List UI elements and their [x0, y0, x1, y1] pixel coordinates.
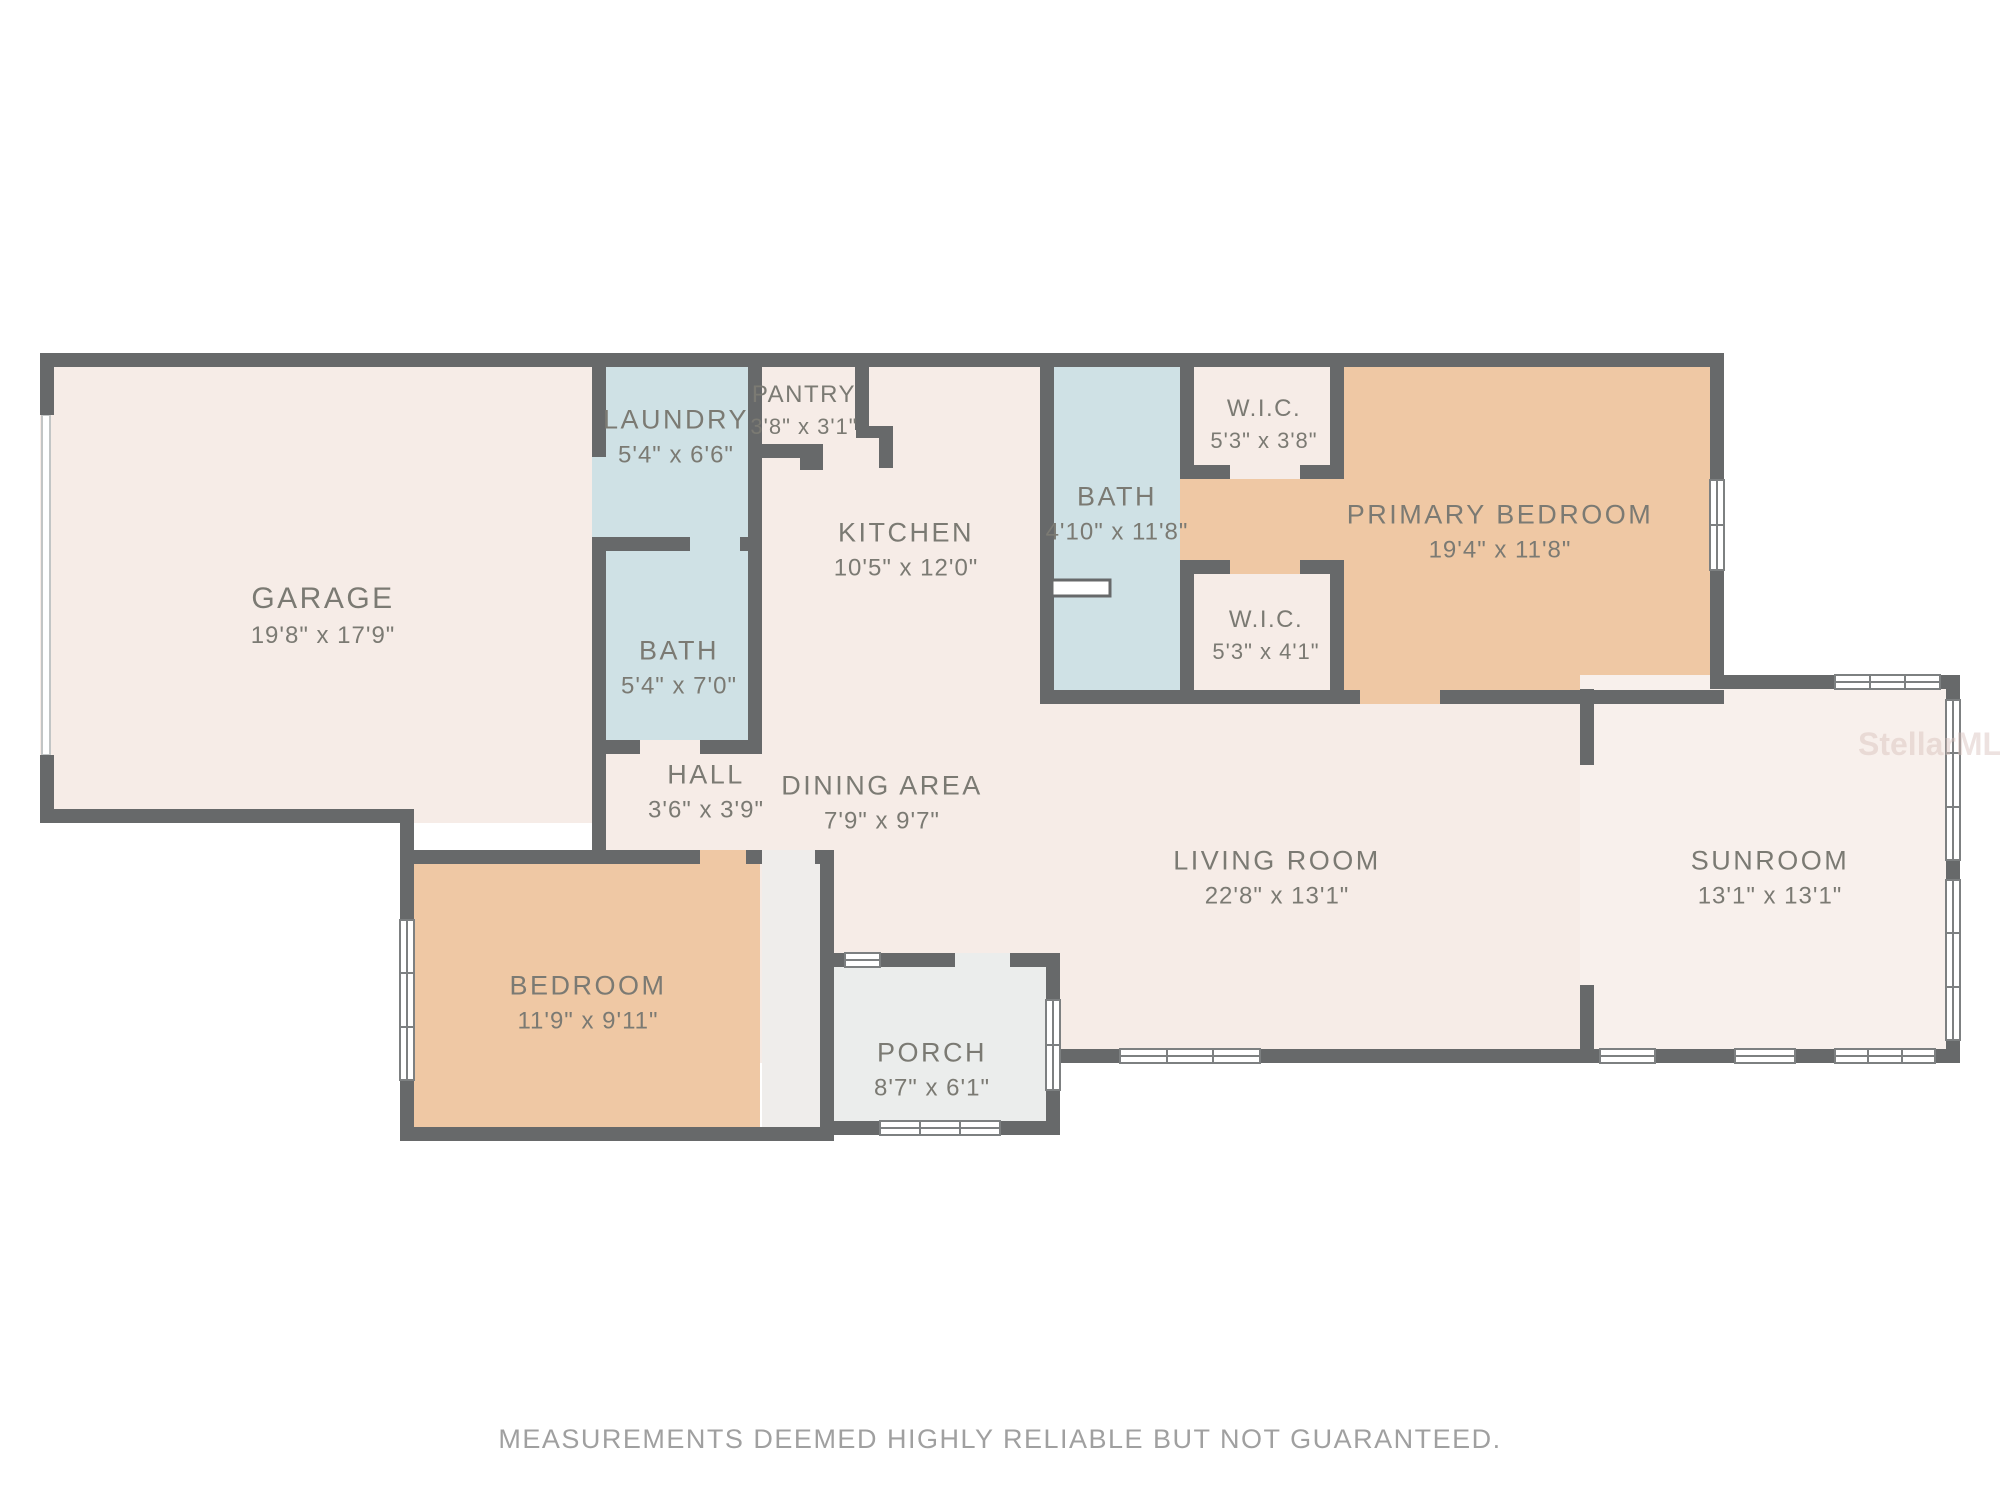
room-label-primary-bedroom: PRIMARY BEDROOM 19'4" x 11'8"	[1347, 499, 1654, 566]
room-name: GARAGE	[251, 580, 396, 618]
room-dims: 11'9" x 9'11"	[509, 1006, 666, 1036]
room-dims: 22'8" x 13'1"	[1173, 881, 1381, 911]
room-label-bedroom: BEDROOM 11'9" x 9'11"	[509, 970, 666, 1037]
room-dims: 13'1" x 13'1"	[1691, 881, 1850, 911]
room-label-porch: PORCH 8'7" x 6'1"	[874, 1037, 990, 1104]
window-marker	[1735, 1049, 1795, 1063]
room-name: BATH	[1046, 481, 1189, 515]
room-name: KITCHEN	[834, 517, 979, 551]
window-marker	[1046, 1000, 1060, 1090]
garage-door-marker	[42, 415, 50, 755]
room-corridor	[1180, 479, 1344, 574]
room-name: W.I.C.	[1212, 605, 1319, 635]
window-marker	[1710, 480, 1724, 570]
room-label-dining: DINING AREA 7'9" x 9'7"	[781, 770, 983, 837]
room-name: LAUNDRY	[603, 404, 749, 438]
watermark: StellarMLS	[1858, 726, 2000, 763]
room-dims: 8'7" x 6'1"	[874, 1073, 990, 1103]
room-dims: 4'10" x 11'8"	[1046, 517, 1189, 547]
rooms-layer	[40, 353, 1960, 1141]
room-name: DINING AREA	[781, 770, 983, 804]
room-name: PORCH	[874, 1037, 990, 1071]
room-label-wic-top: W.I.C. 5'3" x 3'8"	[1210, 394, 1317, 455]
room-label-bath-hall: BATH 5'4" x 7'0"	[621, 635, 737, 702]
room-label-laundry: LAUNDRY 5'4" x 6'6"	[603, 404, 749, 471]
room-label-kitchen: KITCHEN 10'5" x 12'0"	[834, 517, 979, 584]
room-dims: 19'8" x 17'9"	[251, 620, 396, 650]
room-dims: 10'5" x 12'0"	[834, 553, 979, 583]
bath-vanity-marker	[1052, 580, 1110, 596]
window-marker	[880, 1121, 1000, 1135]
room-name: PRIMARY BEDROOM	[1347, 499, 1654, 533]
room-dims: 5'3" x 4'1"	[1212, 638, 1319, 666]
room-name: PANTRY	[750, 380, 857, 410]
room-name: W.I.C.	[1210, 394, 1317, 424]
room-name: BEDROOM	[509, 970, 666, 1004]
window-marker	[400, 920, 414, 1080]
room-label-wic-bottom: W.I.C. 5'3" x 4'1"	[1212, 605, 1319, 666]
room-label-pantry: PANTRY 3'8" x 3'1"	[750, 380, 857, 441]
window-marker	[845, 953, 880, 967]
room-label-garage: GARAGE 19'8" x 17'9"	[251, 580, 396, 651]
room-name: LIVING ROOM	[1173, 845, 1381, 879]
window-marker	[1600, 1049, 1655, 1063]
room-dims: 19'4" x 11'8"	[1347, 535, 1654, 565]
room-name: SUNROOM	[1691, 845, 1850, 879]
room-label-hall: HALL 3'6" x 3'9"	[648, 759, 764, 826]
room-dims: 7'9" x 9'7"	[781, 806, 983, 836]
disclaimer-text: MEASUREMENTS DEEMED HIGHLY RELIABLE BUT …	[498, 1424, 1501, 1455]
room-dims: 3'8" x 3'1"	[750, 413, 857, 441]
floorplan-page: GARAGE 19'8" x 17'9" LAUNDRY 5'4" x 6'6"…	[0, 0, 2000, 1500]
room-dims: 3'6" x 3'9"	[648, 795, 764, 825]
room-label-sunroom: SUNROOM 13'1" x 13'1"	[1691, 845, 1850, 912]
room-label-bath-primary: BATH 4'10" x 11'8"	[1046, 481, 1189, 548]
room-dims: 5'4" x 6'6"	[603, 440, 749, 470]
room-name: BATH	[621, 635, 737, 669]
room-label-living: LIVING ROOM 22'8" x 13'1"	[1173, 845, 1381, 912]
window-marker	[1120, 1049, 1260, 1063]
window-marker	[1835, 675, 1940, 689]
room-dims: 5'4" x 7'0"	[621, 671, 737, 701]
window-marker	[1946, 880, 1960, 1040]
room-name: HALL	[648, 759, 764, 793]
floorplan-drawing	[0, 0, 2000, 1500]
window-marker	[1946, 700, 1960, 860]
window-marker	[1835, 1049, 1935, 1063]
room-dims: 5'3" x 3'8"	[1210, 427, 1317, 455]
